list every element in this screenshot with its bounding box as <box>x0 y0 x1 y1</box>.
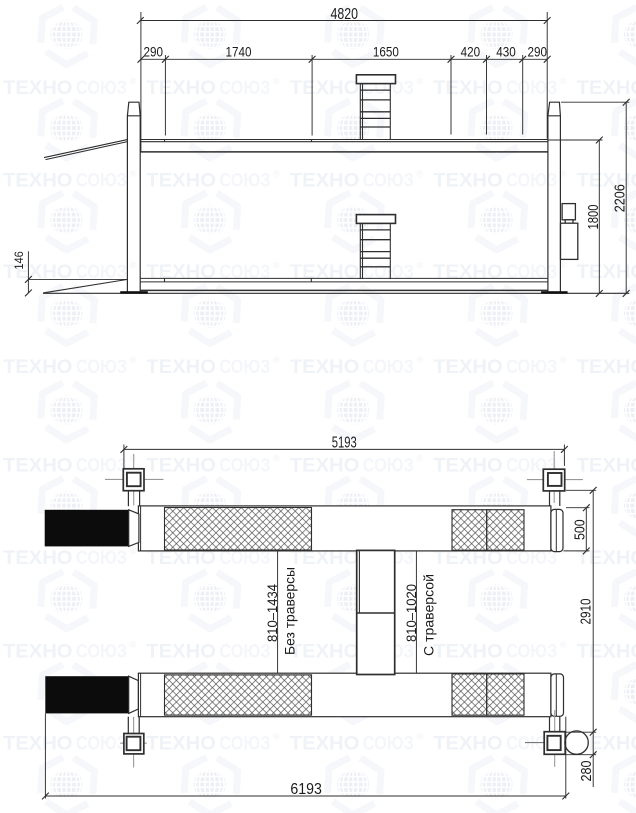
svg-text:2206: 2206 <box>612 184 629 212</box>
svg-text:6193: 6193 <box>290 781 322 798</box>
svg-text:2910: 2910 <box>577 599 594 625</box>
svg-text:420: 420 <box>461 44 481 60</box>
svg-text:1800: 1800 <box>585 205 602 230</box>
svg-text:146: 146 <box>12 251 26 270</box>
svg-text:430: 430 <box>496 44 516 60</box>
svg-text:4820: 4820 <box>331 6 359 23</box>
svg-text:1650: 1650 <box>373 44 399 60</box>
svg-text:290: 290 <box>527 44 547 60</box>
svg-text:810–1020: 810–1020 <box>403 584 419 642</box>
svg-text:810–1434: 810–1434 <box>264 584 280 642</box>
svg-text:5193: 5193 <box>332 434 357 451</box>
svg-text:290: 290 <box>143 44 163 60</box>
svg-text:Без траверсы: Без траверсы <box>282 567 298 655</box>
svg-text:500: 500 <box>571 519 588 540</box>
svg-text:С траверсой: С траверсой <box>420 574 436 656</box>
svg-text:280: 280 <box>578 761 595 782</box>
svg-text:1740: 1740 <box>226 44 252 60</box>
